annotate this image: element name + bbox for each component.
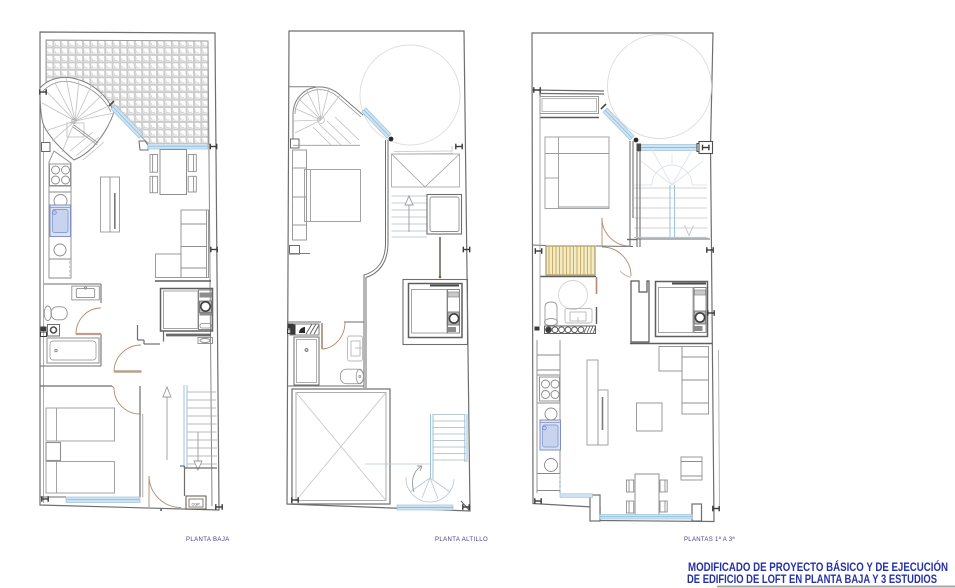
svg-text:PLANTAS 1ª A 3ª: PLANTAS 1ª A 3ª	[684, 536, 735, 543]
svg-text:CGP: CGP	[192, 503, 201, 507]
svg-text:MODIFICADO DE PROYECTO BÁSICO: MODIFICADO DE PROYECTO BÁSICO Y DE EJECU…	[688, 561, 948, 574]
svg-text:PLANTA ALTILLO: PLANTA ALTILLO	[435, 537, 488, 543]
svg-text:PLANTA BAJA: PLANTA BAJA	[186, 537, 230, 543]
svg-text:DE EDIFICIO DE LOFT EN PLANTA: DE EDIFICIO DE LOFT EN PLANTA BAJA Y 3 E…	[687, 574, 937, 586]
